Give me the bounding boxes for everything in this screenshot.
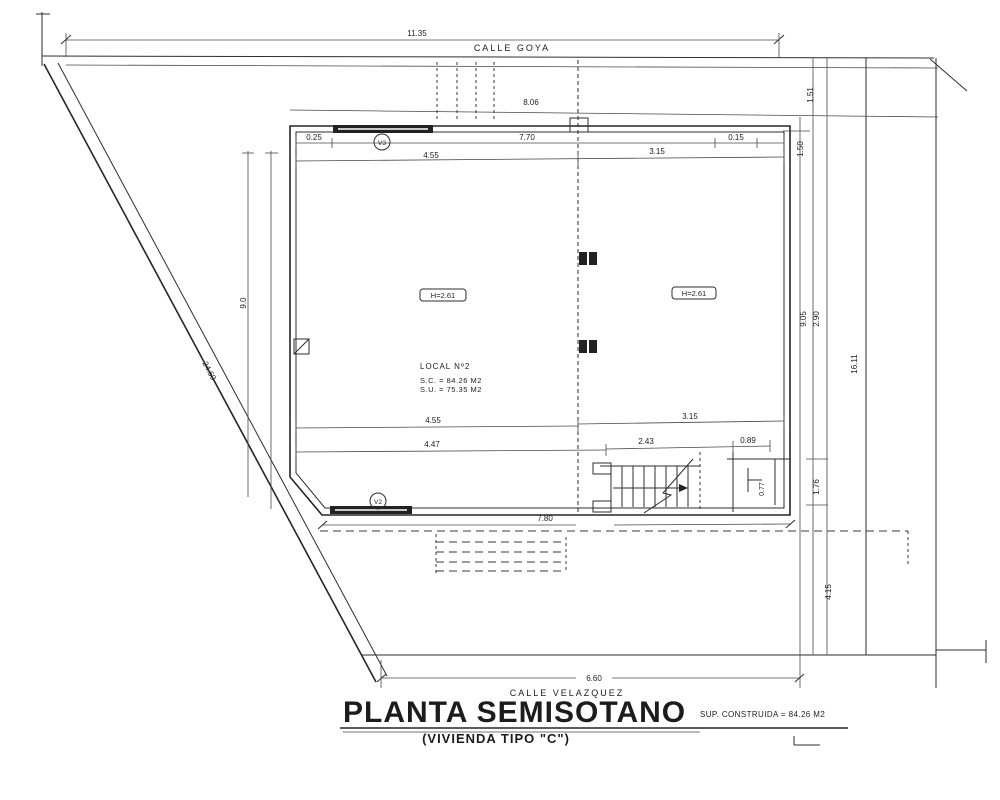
column	[579, 252, 587, 265]
dim-right-top-b: 1.50	[796, 141, 805, 157]
bottom-dimension: 6.60 CALLE VELAZQUEZ	[377, 660, 804, 698]
outer-wall	[290, 126, 790, 515]
dim-right-low: 1.76	[812, 479, 821, 495]
dim-top-left-offset: 0.25	[306, 133, 322, 142]
top-dimension: 11.35 CALLE GOYA	[61, 29, 784, 57]
window-tag-top: V3	[378, 140, 386, 147]
dim-plot-right: 16.11	[850, 354, 859, 374]
right-dimensions: 1.51 1.50 9.05 2.90 16.11 1.76 4.15	[783, 58, 859, 688]
dim-left-height: 9.0	[239, 297, 248, 309]
top-street-line	[42, 56, 934, 58]
dim-top-right-offset: 0.15	[728, 133, 744, 142]
height-label-right: H=2.61	[682, 289, 706, 298]
floor-plan-page: 11.35 CALLE GOYA 8.06 0.25 7.70	[0, 0, 1000, 800]
surface-note: SUP. CONSTRUIDA = 84.26 M2	[700, 710, 825, 719]
upper-interior-dimensions: 0.25 7.70 0.15 V3 4.55 3.15	[296, 133, 784, 167]
dim-right-mid-a: 9.05	[799, 311, 808, 327]
dim-setback: 8.06	[523, 98, 539, 107]
dim-diagonal: 24.60	[201, 360, 219, 382]
setback-line	[290, 110, 938, 117]
column	[579, 340, 587, 353]
dim-upper-right: 3.15	[649, 147, 665, 156]
staircase: 0.77	[593, 452, 790, 513]
dim-right-top-a: 1.51	[806, 87, 815, 103]
building-walls	[290, 118, 790, 515]
height-label-left: H=2.61	[431, 291, 455, 300]
stair-break-line	[644, 459, 693, 513]
drawing-subtitle: (VIVIENDA TIPO "C")	[422, 731, 570, 746]
dim-stair-right: 0.77	[759, 482, 766, 496]
dim-plot-top: 11.35	[407, 29, 427, 38]
stair-jamb	[593, 463, 611, 474]
left-dimensions: 9.0 24.60	[201, 151, 278, 509]
dashed-guides: 8.06	[437, 60, 578, 512]
top-door-notch	[570, 118, 588, 132]
street-name-top: CALLE GOYA	[474, 43, 550, 53]
dim-plot-bottom: 6.60	[586, 674, 602, 683]
dim-right-lower: 4.15	[824, 584, 833, 600]
column	[589, 252, 597, 265]
room-built-area: S.C. = 84.26 M2	[420, 376, 482, 385]
stair-direction-arrow	[679, 484, 688, 492]
dim-bottom-mid: 2.43	[638, 437, 654, 446]
stair-jamb	[593, 501, 611, 512]
room-name: LOCAL Nº2	[420, 362, 470, 371]
drawing-title: PLANTA SEMISOTANO	[343, 696, 686, 729]
window-tag-bottom: V2	[374, 499, 382, 506]
plot-boundary	[36, 12, 986, 688]
dim-bottom-left: 4.47	[424, 440, 440, 449]
dim-upper-left: 4.55	[423, 151, 439, 160]
dim-top-span: 7.70	[519, 133, 535, 142]
ramp-dashed	[320, 531, 908, 573]
dim-lower-left: 4.55	[425, 416, 441, 425]
room-usable-area: S.U. = 75.35 M2	[420, 385, 482, 394]
dim-lower-right: 3.15	[682, 412, 698, 421]
column	[589, 340, 597, 353]
floor-plan-drawing: 11.35 CALLE GOYA 8.06 0.25 7.70	[0, 0, 1000, 800]
dim-right-mid-b: 2.90	[812, 311, 821, 327]
title-block: PLANTA SEMISOTANO (VIVIENDA TIPO "C") SU…	[340, 696, 848, 746]
dim-bottom-wall: 7.80	[537, 514, 553, 523]
dim-bottom-right: 0.89	[740, 436, 756, 445]
room-labels: H=2.61 H=2.61 LOCAL Nº2 S.C. = 84.26 M2 …	[420, 287, 716, 394]
